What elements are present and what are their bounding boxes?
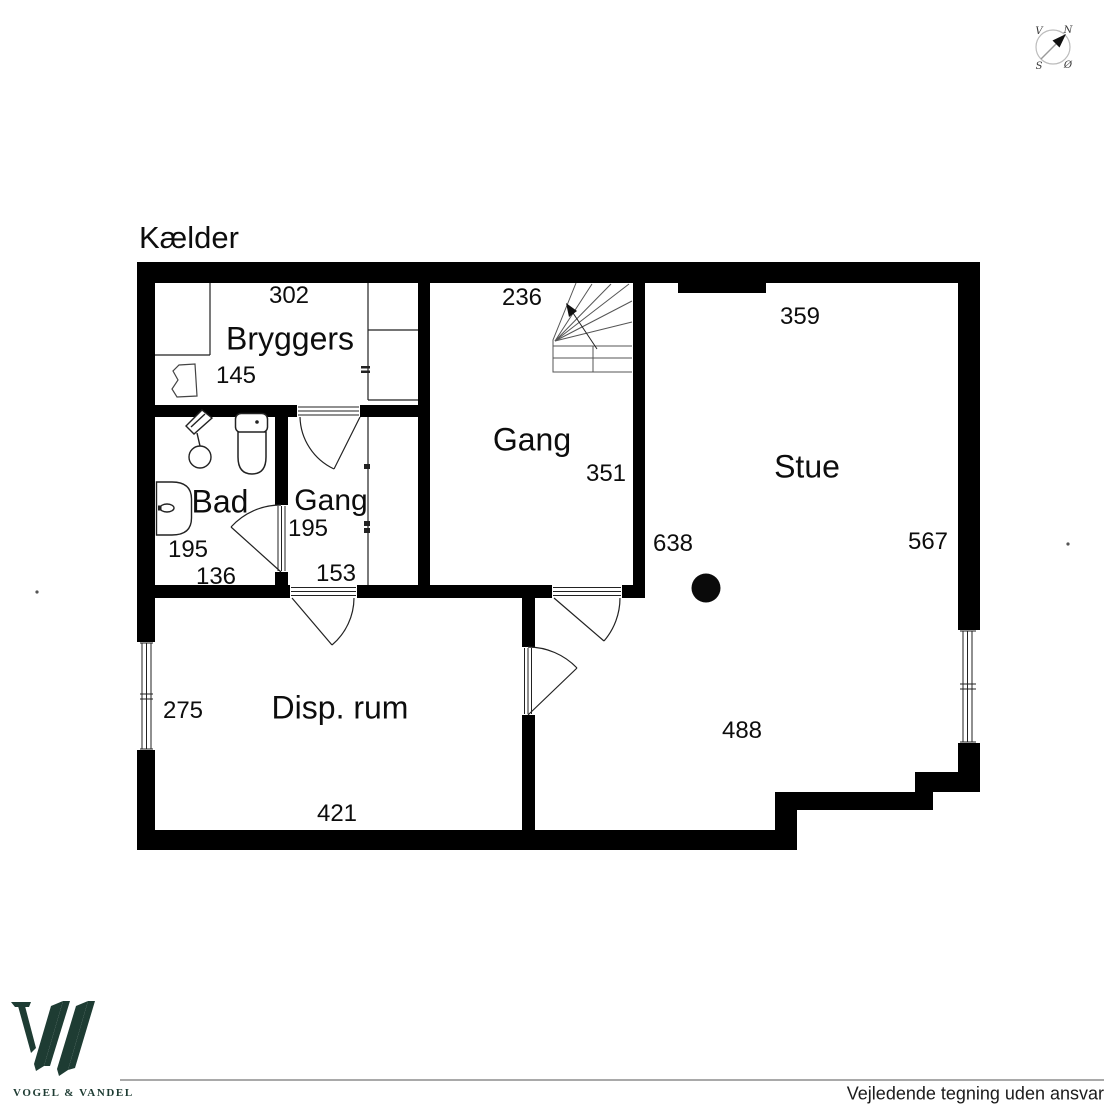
dim-bad-depth: 195 (168, 536, 208, 564)
dim-disp-rum-width: 421 (317, 800, 357, 828)
dim-gang-small-depth: 195 (288, 515, 328, 543)
compass-rose: V N S Ø (1035, 25, 1073, 72)
staircase (553, 283, 632, 372)
speck-right (1066, 542, 1069, 545)
toilet-icon (236, 414, 268, 475)
dim-disp-rum-depth: 275 (163, 697, 203, 725)
shower-icon (186, 410, 212, 468)
cabinet-handle (361, 366, 370, 373)
wall-right-upper (958, 283, 980, 630)
dim-bryggers-width: 302 (269, 282, 309, 310)
footer-divider (120, 1079, 1104, 1081)
compass-letter-ne: N (1063, 25, 1074, 36)
window-left (140, 643, 153, 749)
bryggers-cabinet-right (368, 283, 418, 400)
compass-letter-sw: S (1036, 61, 1043, 72)
dim-gang-hall-depth: 351 (586, 460, 626, 488)
dim-stue-width-top: 359 (780, 303, 820, 331)
room-label-bryggers: Bryggers (226, 321, 354, 358)
wall-gangsmall-ganghall (418, 283, 430, 598)
wall-bad-gangsmall-upper (275, 417, 288, 505)
wall-top (137, 262, 980, 283)
compass-letter-se: Ø (1063, 60, 1073, 71)
wall-gangsmall-disp (357, 585, 552, 598)
wall-bottom (137, 830, 797, 850)
wall-left-upper (137, 283, 155, 642)
speck-left (35, 590, 38, 593)
laundry-sink-icon (172, 364, 197, 397)
washbasin-icon (157, 482, 192, 535)
dim-gang-small-width: 153 (316, 560, 356, 588)
wall-step-band-2 (915, 772, 980, 792)
compass-letter-nw: V (1035, 26, 1044, 37)
wall-step-band-1 (775, 792, 933, 810)
door-gangsmall-disp (291, 588, 356, 646)
plan-title: Kælder (139, 220, 239, 256)
door-bryggers-gangsmall (298, 407, 360, 469)
window-right (960, 631, 976, 742)
wall-ganghall-stue (633, 283, 645, 598)
wall-disp-stue-upper (522, 598, 535, 647)
wall-disp-stue-lower (522, 715, 535, 830)
wall-bryggers-bad-left (155, 405, 297, 417)
dim-bad-width: 136 (196, 563, 236, 591)
brand-name: VOGEL & VANDEL (13, 1087, 134, 1099)
dim-stue-depth: 567 (908, 528, 948, 556)
chimney-dot (692, 574, 721, 603)
bryggers-counter-left (155, 283, 210, 355)
wall-top-notch (678, 283, 766, 293)
vogel-vandel-logo-monogram (11, 1001, 95, 1076)
dim-bryggers-depth: 145 (216, 362, 256, 390)
room-label-stue: Stue (774, 449, 840, 486)
dim-stue-width-bottom: 488 (722, 717, 762, 745)
room-label-gang-small: Gang (294, 484, 367, 518)
wall-bad-gangsmall-lower (275, 572, 288, 585)
dim-gang-hall-width: 236 (502, 284, 542, 312)
dim-stue-depth-left: 638 (653, 530, 693, 558)
door-disp-stue (525, 647, 578, 715)
room-label-gang-hall: Gang (493, 422, 571, 459)
floor-plan-page: V N S Ø Kælder Bryggers 302 145 Gang 236… (0, 0, 1110, 1110)
footer-disclaimer: Vejledende tegning uden ansvar (847, 1084, 1104, 1105)
stairs-direction-arrow (566, 303, 577, 317)
wall-left-lower (137, 750, 155, 835)
door-ganghall-stue (553, 588, 621, 642)
room-label-disp-rum: Disp. rum (272, 690, 409, 727)
room-label-bad: Bad (192, 484, 249, 521)
